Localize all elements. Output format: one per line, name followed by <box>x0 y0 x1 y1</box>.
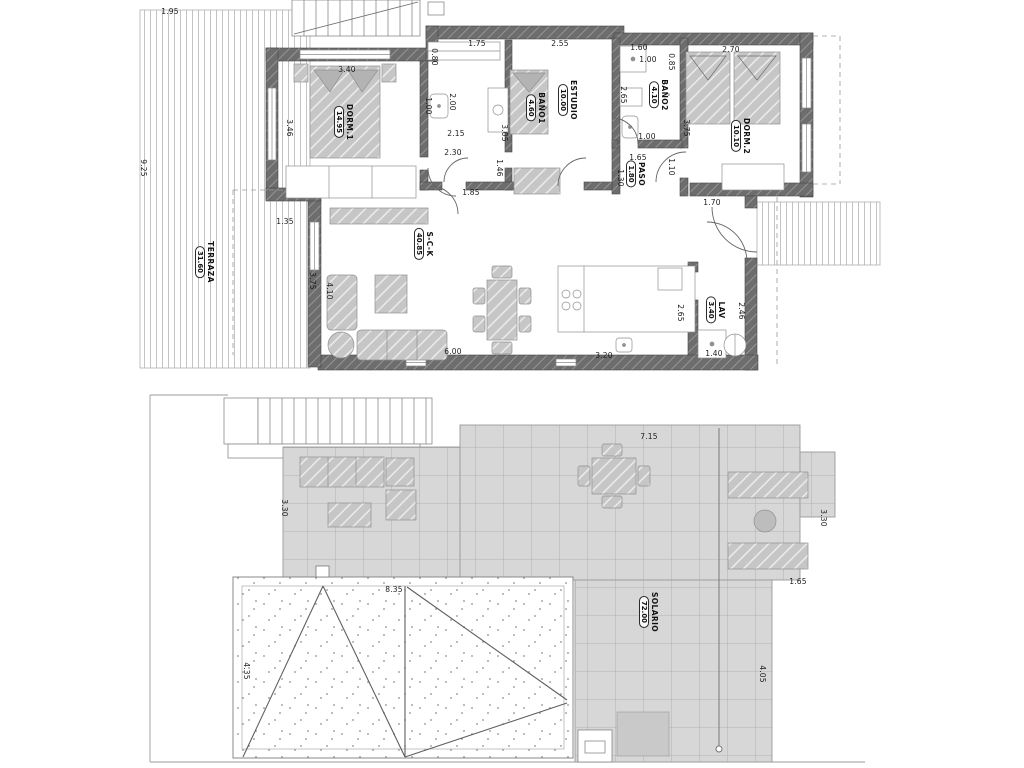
furniture-upper <box>286 42 784 360</box>
roof-chimney <box>316 566 329 577</box>
staircase-upper <box>292 0 444 36</box>
roof <box>233 566 573 758</box>
porch-decking <box>757 202 880 265</box>
floorplan-canvas: 1.959.253.403.462.001.000.801.752.152.30… <box>0 0 1024 768</box>
upper-floor-plan <box>140 0 880 370</box>
plan-drawing <box>0 0 1024 768</box>
lower-roof-plan <box>150 395 865 762</box>
